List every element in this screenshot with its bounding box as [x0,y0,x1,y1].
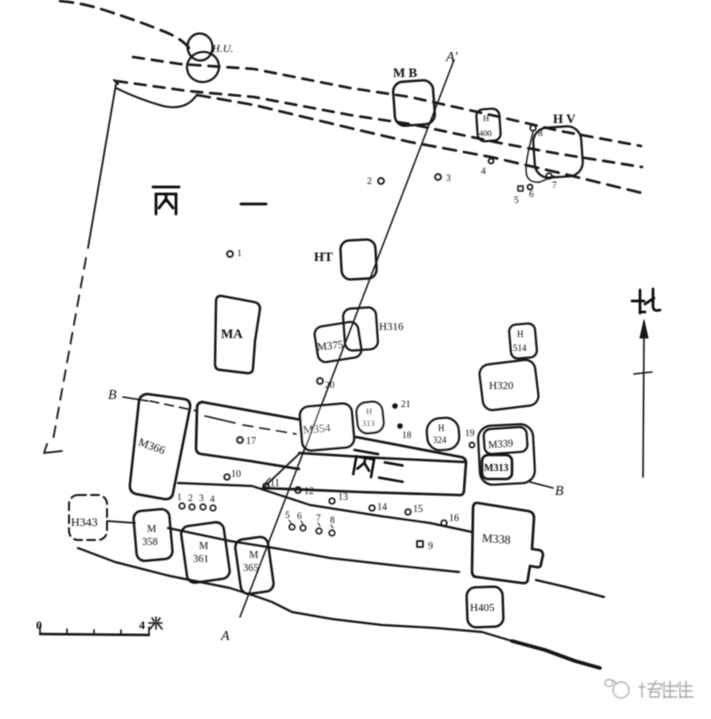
svg-text:M B: M B [393,65,418,80]
svg-text:20: 20 [325,381,335,391]
svg-text:12: 12 [304,486,314,497]
svg-text:15: 15 [413,504,423,515]
svg-text:365: 365 [243,563,259,574]
svg-text:M354: M354 [303,422,332,436]
svg-text:18: 18 [402,431,412,441]
svg-text:B: B [108,388,117,403]
svg-text:H405: H405 [470,602,495,614]
svg-text:1: 1 [237,249,242,259]
svg-text:4: 4 [139,618,145,632]
svg-text:17: 17 [246,436,256,447]
svg-text:HT: HT [314,249,333,264]
svg-text:13: 13 [338,492,348,503]
svg-text:H.U.: H.U. [211,43,233,55]
svg-text:H: H [483,113,489,123]
svg-text:8: 8 [538,129,543,139]
svg-text:A: A [220,629,230,644]
svg-text:M: M [249,550,259,561]
svg-text:A′: A′ [445,50,459,65]
svg-text:H320: H320 [489,380,514,392]
svg-text:H316: H316 [379,321,404,333]
svg-text:361: 361 [193,554,209,565]
svg-text:H343: H343 [71,515,98,529]
svg-text:M375: M375 [317,339,345,354]
svg-text:M366: M366 [137,436,167,457]
svg-text:313: 313 [362,418,375,428]
svg-text:14: 14 [377,502,387,513]
svg-text:2: 2 [188,494,193,504]
svg-text:B: B [555,484,564,499]
svg-text:9: 9 [428,541,433,552]
svg-text:1: 1 [177,493,182,503]
svg-text:H: H [517,329,524,339]
svg-text:4: 4 [210,495,215,505]
svg-text:514: 514 [513,343,527,353]
svg-text:5: 5 [514,196,519,206]
svg-text:6: 6 [297,512,302,522]
svg-text:M: M [199,541,209,552]
svg-text:0: 0 [36,618,42,632]
svg-text:H V: H V [553,111,576,126]
svg-text:M: M [147,524,157,535]
svg-text:3: 3 [446,174,451,184]
svg-text:M339: M339 [488,438,514,451]
svg-text:400: 400 [479,128,492,138]
svg-text:M338: M338 [481,531,511,547]
svg-text:2: 2 [367,177,372,187]
svg-text:7: 7 [552,181,557,191]
svg-text:19: 19 [465,429,475,439]
svg-text:7: 7 [316,514,321,524]
svg-text:M313: M313 [484,463,508,474]
svg-text:6: 6 [529,190,534,200]
svg-text:358: 358 [142,537,158,548]
svg-text:16: 16 [449,513,459,524]
svg-text:11: 11 [270,478,280,489]
svg-text:H: H [438,423,445,433]
svg-text:8: 8 [330,516,335,526]
svg-text:10: 10 [231,469,241,480]
svg-text:324: 324 [433,435,447,445]
svg-text:MA: MA [221,326,243,341]
svg-text:H: H [366,406,372,416]
svg-text:3: 3 [199,494,204,504]
svg-text:5: 5 [285,511,290,521]
svg-text:4: 4 [481,167,486,177]
svg-text:21: 21 [401,400,411,410]
